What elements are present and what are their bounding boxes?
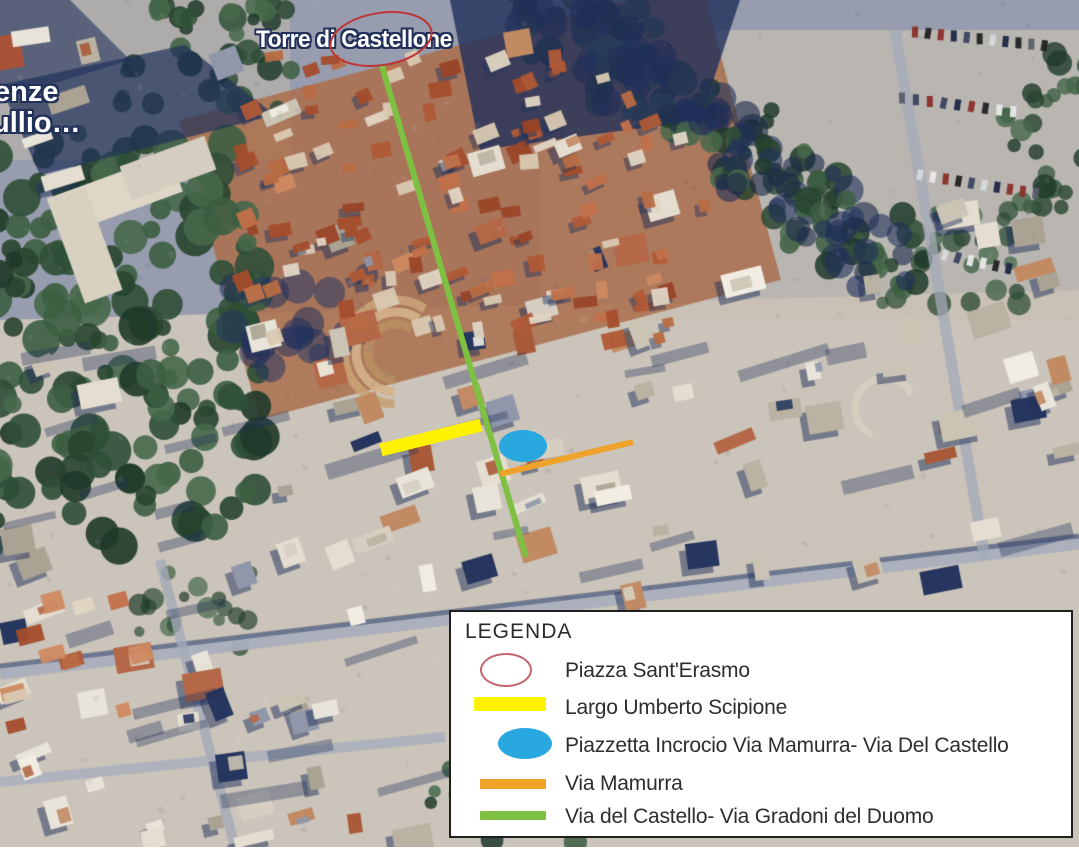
piazza-sant-erasmo-ellipse — [327, 5, 436, 72]
map-figure: Torre di Castellone enze ullio… LEGENDA … — [0, 0, 1079, 854]
legend-symbol-yellow-bar — [474, 697, 546, 711]
legend: LEGENDA Piazza Sant'Erasmo Largo Umberto… — [449, 610, 1073, 838]
largo-umberto-scipione-bar — [381, 425, 481, 450]
legend-label-piazza-sant-erasmo: Piazza Sant'Erasmo — [565, 659, 750, 683]
legend-symbol-blue-ellipse — [498, 728, 552, 759]
piazzetta-incrocio-ellipse — [499, 430, 547, 462]
legend-label-largo-umberto-scipione: Largo Umberto Scipione — [565, 696, 787, 720]
legend-label-via-del-castello: Via del Castello- Via Gradoni del Duomo — [565, 805, 933, 829]
legend-title: LEGENDA — [465, 620, 572, 644]
legend-label-piazzetta-incrocio: Piazzetta Incrocio Via Mamurra- Via Del … — [565, 734, 1009, 758]
via-del-castello-line — [382, 66, 526, 557]
legend-symbol-red-ellipse — [480, 653, 532, 687]
legend-symbol-orange-bar — [480, 779, 546, 789]
legend-label-via-mamurra: Via Mamurra — [565, 772, 683, 796]
legend-symbol-green-bar — [480, 811, 546, 820]
